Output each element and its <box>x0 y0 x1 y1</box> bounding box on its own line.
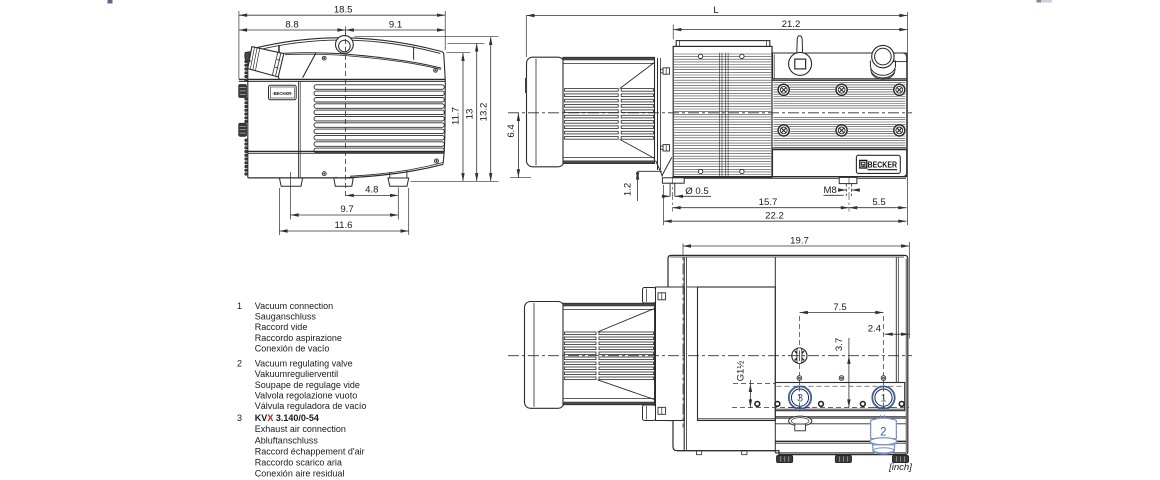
svg-text:15.7: 15.7 <box>759 197 778 208</box>
svg-text:6.4: 6.4 <box>506 124 517 138</box>
svg-text:Conexión de vacío: Conexión de vacío <box>255 344 330 354</box>
svg-text:13: 13 <box>464 109 475 120</box>
svg-text:19.7: 19.7 <box>790 235 809 246</box>
svg-text:18.5: 18.5 <box>334 5 353 16</box>
svg-text:L: L <box>713 5 719 16</box>
svg-text:Raccord vide: Raccord vide <box>255 322 308 332</box>
svg-text:Soupape de regulage vide: Soupape de regulage vide <box>255 380 360 390</box>
svg-text:Vacuum regulating valve: Vacuum regulating valve <box>255 358 353 368</box>
svg-text:Raccordo aspirazione: Raccordo aspirazione <box>255 333 342 343</box>
svg-text:7.5: 7.5 <box>833 302 846 313</box>
svg-text:9.1: 9.1 <box>389 19 402 30</box>
svg-text:13.2: 13.2 <box>478 103 489 122</box>
svg-text:Abluftanschluss: Abluftanschluss <box>255 435 319 445</box>
svg-text:3: 3 <box>797 393 803 405</box>
svg-text:2: 2 <box>880 427 886 439</box>
svg-text:Conexión aire residual: Conexión aire residual <box>255 469 345 479</box>
svg-text:3: 3 <box>237 413 242 423</box>
svg-text:5.5: 5.5 <box>872 197 885 208</box>
svg-text:[inch]: [inch] <box>888 462 912 473</box>
svg-text:11.7: 11.7 <box>451 107 462 125</box>
svg-text:2.4: 2.4 <box>868 324 882 335</box>
svg-text:3.7: 3.7 <box>834 338 845 351</box>
svg-text:Valvola regolazione vuoto: Valvola regolazione vuoto <box>255 391 357 401</box>
svg-text:9.7: 9.7 <box>340 204 353 215</box>
svg-text:Exhaust air connection: Exhaust air connection <box>255 424 346 434</box>
svg-text:-BECKER-: -BECKER- <box>272 91 293 96</box>
svg-text:Raccord échappement d'air: Raccord échappement d'air <box>255 446 365 456</box>
svg-text:G1½: G1½ <box>736 361 747 382</box>
svg-text:8.8: 8.8 <box>285 19 298 30</box>
svg-text:1.2: 1.2 <box>623 183 634 196</box>
svg-text:M8: M8 <box>824 185 837 196</box>
svg-text:1: 1 <box>237 301 242 311</box>
svg-text:11.6: 11.6 <box>335 220 353 231</box>
svg-text:Vacuum connection: Vacuum connection <box>255 301 333 311</box>
svg-text:21.2: 21.2 <box>782 19 801 30</box>
svg-text:Ø 0.5: Ø 0.5 <box>685 186 708 197</box>
svg-text:2: 2 <box>237 358 242 368</box>
svg-text:Raccordo scarico aria: Raccordo scarico aria <box>255 458 342 468</box>
svg-text:KVX 3.140/0-54: KVX 3.140/0-54 <box>255 413 319 423</box>
svg-text:BECKER: BECKER <box>868 159 898 169</box>
svg-text:4.8: 4.8 <box>365 185 378 196</box>
svg-text:22.2: 22.2 <box>765 210 784 221</box>
svg-text:Sauganschluss: Sauganschluss <box>255 312 317 322</box>
svg-text:Válvula reguladora de vacío: Válvula reguladora de vacío <box>255 401 367 411</box>
svg-text:Vakuumregulierventil: Vakuumregulierventil <box>255 369 338 379</box>
